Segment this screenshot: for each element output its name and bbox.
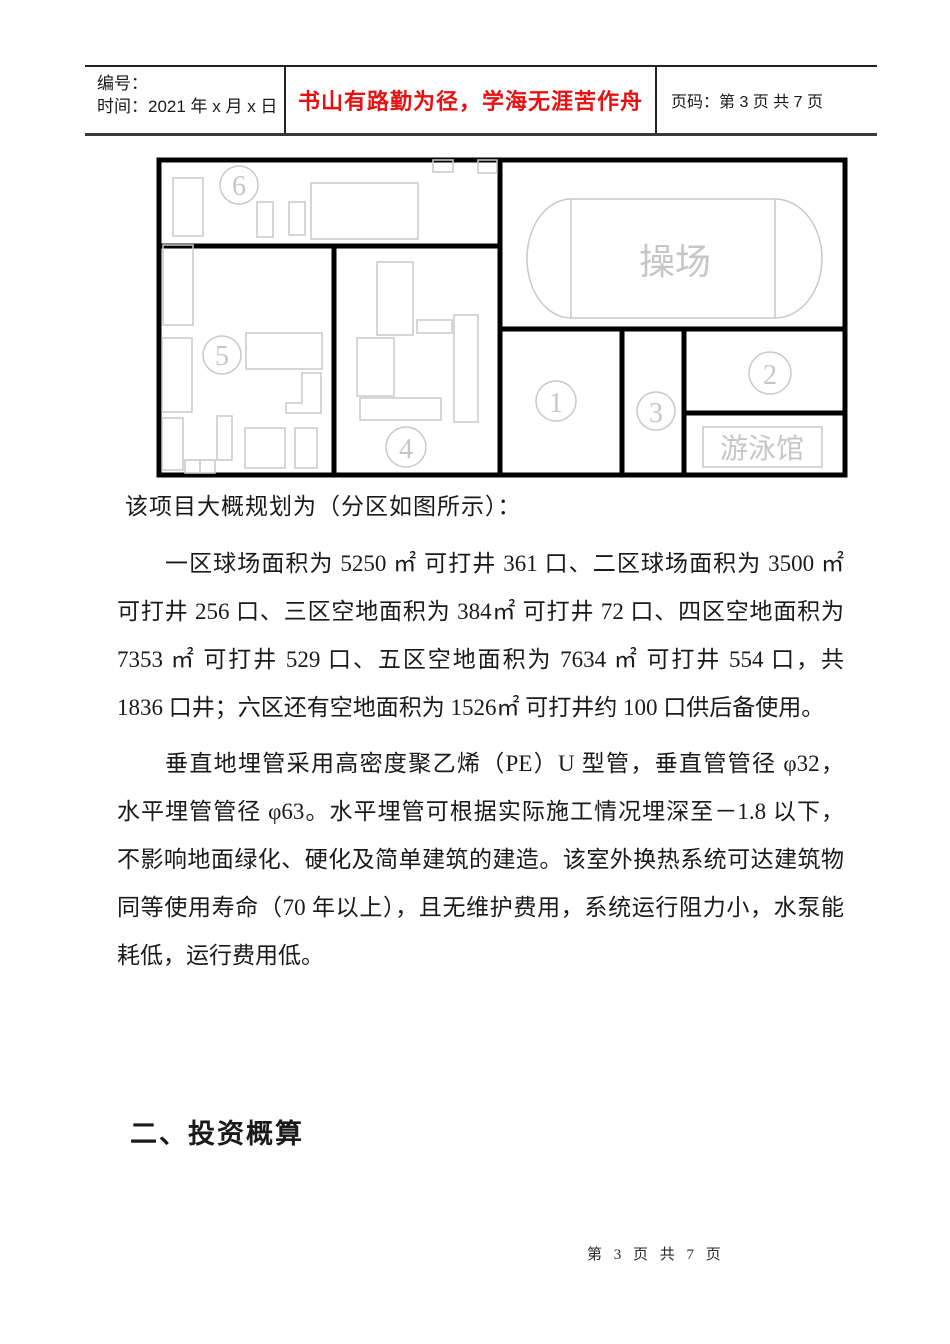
building [289,202,305,235]
paragraph-line: 一区球场面积为 5250 ㎡ 可打井 361 口、二区球场面积为 3500 ㎡ [117,540,844,588]
zone2-number: 2 [763,360,777,391]
page-footer: 第 3 页 共 7 页 [587,1243,725,1264]
zone4-number: 4 [399,434,413,465]
playground-track-left-arc [527,199,571,318]
zoning-plan-diagram: 6 5 4 [155,150,850,485]
playground-track-right-arc [775,199,822,318]
intro-line: 该项目大概规划为（分区如图所示）： [125,492,855,522]
building [357,338,394,396]
building [217,416,232,460]
doc-time-label: 时间：2021 年 x 月 x 日 [97,95,284,118]
building [246,333,322,369]
zone4-buildings: 4 [357,262,478,467]
building [311,183,418,239]
building [257,202,273,237]
building [245,428,285,468]
zone5-number: 5 [215,341,229,372]
doc-number-label: 编号： [97,72,284,95]
paragraph-line: 可打井 256 口、三区空地面积为 384㎡ 可打井 72 口、四区空地面积为 [117,588,844,636]
header-cell-meta: 编号： 时间：2021 年 x 月 x 日 [85,67,286,133]
paragraph-line: 1836 口井；六区还有空地面积为 1526㎡ 可打井约 100 口供后备使用。 [117,684,844,732]
playground-area: 操场 [527,199,822,318]
building [162,418,183,470]
paragraph-line: 垂直地埋管采用高密度聚乙烯（PE）U 型管，垂直管管径 φ32， [117,740,844,788]
building [200,460,215,473]
paragraph-pipes: 垂直地埋管采用高密度聚乙烯（PE）U 型管，垂直管管径 φ32， 水平埋管管径 … [117,740,844,980]
zoning-plan-svg: 6 5 4 [155,150,850,485]
natatorium-label: 游泳馆 [720,433,804,465]
building [417,320,452,333]
paragraph-line: 不影响地面绿化、硬化及简单建筑的建造。该室外换热系统可达建筑物 [117,836,844,884]
header-cell-motto: 书山有路勤为径，学海无涯苦作舟 [286,67,657,133]
building [295,428,317,468]
building-l-shape [286,373,321,413]
header-table: 编号： 时间：2021 年 x 月 x 日 书山有路勤为径，学海无涯苦作舟 页码… [85,65,877,136]
paragraph-line: 耗低，运行费用低。 [117,932,844,980]
building [454,315,478,422]
zone-markers: 1 3 2 [536,352,791,430]
header-page-label: 页码：第 3 页 共 7 页 [671,88,823,112]
paragraph-zones: 一区球场面积为 5250 ㎡ 可打井 361 口、二区球场面积为 3500 ㎡ … [117,540,844,732]
building [377,262,413,335]
building [163,245,193,325]
building [185,460,200,473]
section-heading-investment: 二、投资概算 [130,1112,304,1151]
zone3-number: 3 [649,398,663,429]
natatorium-area: 游泳馆 [703,427,822,467]
zone1-number: 1 [549,388,563,419]
paragraph-line: 水平埋管管径 φ63。水平埋管可根据实际施工情况埋深至－1.8 以下， [117,788,844,836]
playground-label: 操场 [639,242,711,282]
header-cell-page: 页码：第 3 页 共 7 页 [657,67,877,133]
paragraph-line: 同等使用寿命（70 年以上），且无维护费用，系统运行阻力小，水泵能 [117,884,844,932]
zone5-buildings: 5 [162,245,322,473]
zone6-buildings: 6 [173,160,497,239]
building [162,338,192,412]
zone6-number: 6 [232,171,246,202]
paragraph-line: 7353 ㎡ 可打井 529 口、五区空地面积为 7634 ㎡ 可打井 554 … [117,636,844,684]
header-motto: 书山有路勤为径，学海无涯苦作舟 [298,84,643,116]
building [173,178,203,236]
building [360,398,441,420]
